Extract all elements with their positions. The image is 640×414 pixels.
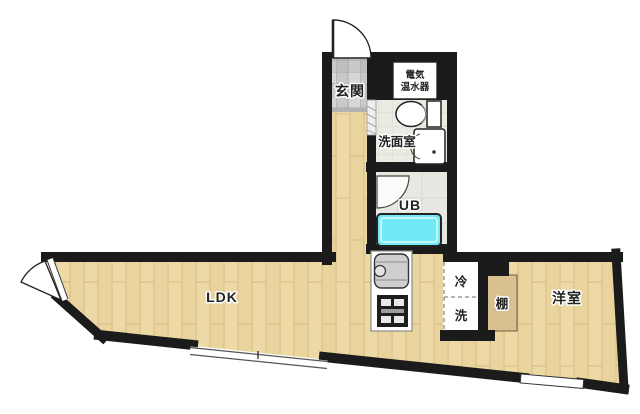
wall-bottom-3 [581,383,624,389]
stove-icon [377,295,408,327]
floor-plan-canvas: 玄関 電気 温水器 洗面室 UB LDK 冷 洗 棚 洋室 [0,0,640,414]
western-room-label: 洋室 [552,290,582,306]
ldk-label: LDK [206,289,238,305]
wall-left-column [322,52,332,265]
kitchen-sink-icon [375,254,409,288]
washer-label: 洗 [455,308,468,323]
water-heater-label-line2: 温水器 [401,81,430,93]
wall-column-right [447,52,457,257]
entrance-label: 玄関 [335,83,365,99]
refrigerator-label: 冷 [455,274,468,289]
washroom-label: 洗面室 [378,134,416,149]
entrance-step-edge [331,108,368,112]
kitchen-counter [371,251,412,331]
floor-plan: 玄関 電気 温水器 洗面室 UB LDK 冷 洗 棚 洋室 [0,0,640,414]
wall-niche-bottom [440,330,495,341]
toilet-icon [396,101,441,127]
washroom-door-strip [367,100,376,135]
wall-hall-ub [367,134,376,254]
bathtub-icon [377,214,441,246]
water-heater-label-line1: 電気 [405,69,425,81]
hallway-floor [331,104,368,262]
shelf-label: 棚 [496,296,509,311]
unit-bath-label: UB [399,197,421,213]
